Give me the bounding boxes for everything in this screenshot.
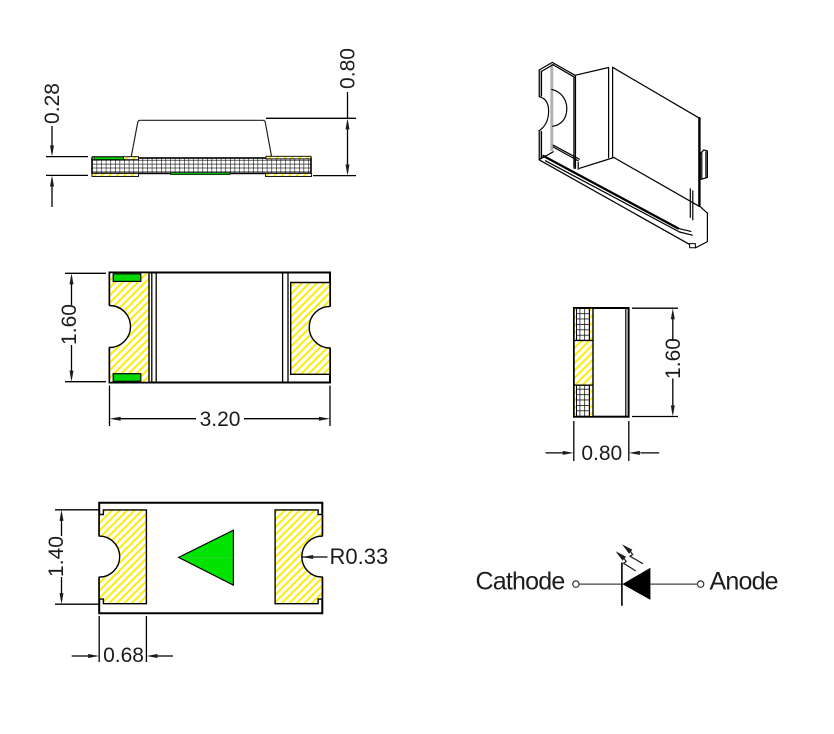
- svg-text:0.80: 0.80: [581, 442, 622, 465]
- svg-text:3.20: 3.20: [200, 408, 241, 431]
- svg-text:R0.33: R0.33: [330, 544, 389, 569]
- svg-text:Anode: Anode: [710, 568, 778, 596]
- svg-text:0.68: 0.68: [103, 644, 144, 667]
- svg-text:0.28: 0.28: [41, 83, 64, 124]
- svg-text:1.60: 1.60: [58, 304, 81, 345]
- svg-text:1.40: 1.40: [45, 536, 68, 577]
- svg-text:0.80: 0.80: [337, 48, 360, 89]
- svg-text:1.60: 1.60: [662, 338, 685, 379]
- svg-text:Cathode: Cathode: [476, 568, 565, 596]
